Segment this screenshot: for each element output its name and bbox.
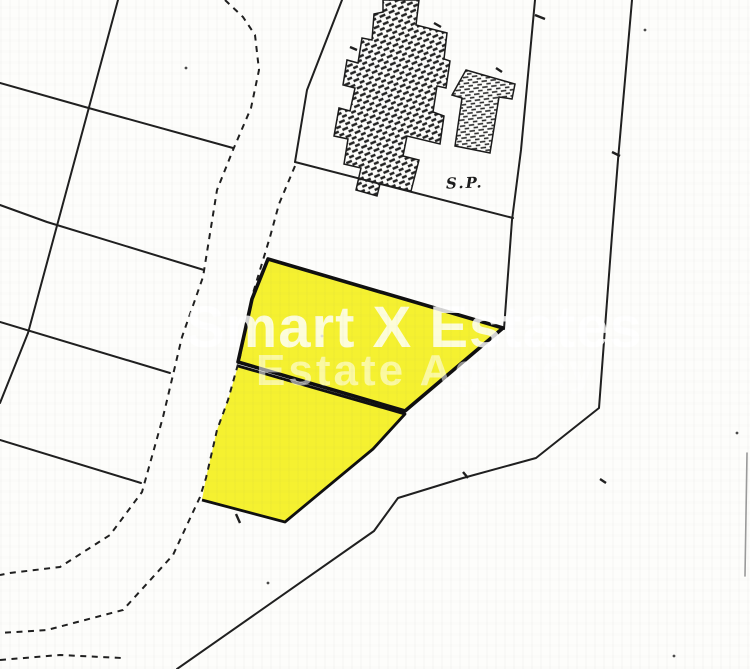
survey-tick-3 bbox=[350, 47, 357, 50]
cadastral-plan-canvas: Smart X Estates Estate Agency S.P. bbox=[0, 0, 750, 669]
parcel-line-3 bbox=[0, 322, 170, 373]
scan-speck-5 bbox=[267, 582, 270, 585]
scan-speck-3 bbox=[736, 432, 739, 435]
survey-tick-0 bbox=[535, 15, 545, 19]
scan-speck-0 bbox=[185, 67, 188, 70]
road-west-edge bbox=[504, 0, 535, 329]
layer-buildings bbox=[334, 0, 515, 196]
building-small bbox=[452, 70, 515, 153]
road-dashed-bottom bbox=[0, 655, 122, 660]
survey-point-label: S.P. bbox=[446, 173, 484, 192]
scan-speck-1 bbox=[644, 29, 647, 32]
parcel-line-1 bbox=[0, 83, 233, 148]
survey-tick-2 bbox=[434, 23, 441, 27]
parcel-line-vertical bbox=[0, 0, 118, 403]
scan-speck-4 bbox=[673, 655, 676, 658]
road-edge-upper-left bbox=[295, 0, 342, 162]
survey-tick-6 bbox=[236, 514, 240, 523]
building-large bbox=[334, 0, 450, 196]
survey-tick-7 bbox=[600, 479, 606, 483]
survey-tick-4 bbox=[496, 68, 502, 72]
parcel-line-4 bbox=[0, 440, 141, 483]
scan-edge-artifact bbox=[745, 453, 747, 576]
watermark-tagline-text: Estate Agency bbox=[256, 346, 597, 396]
parcel-line-2 bbox=[0, 205, 204, 270]
